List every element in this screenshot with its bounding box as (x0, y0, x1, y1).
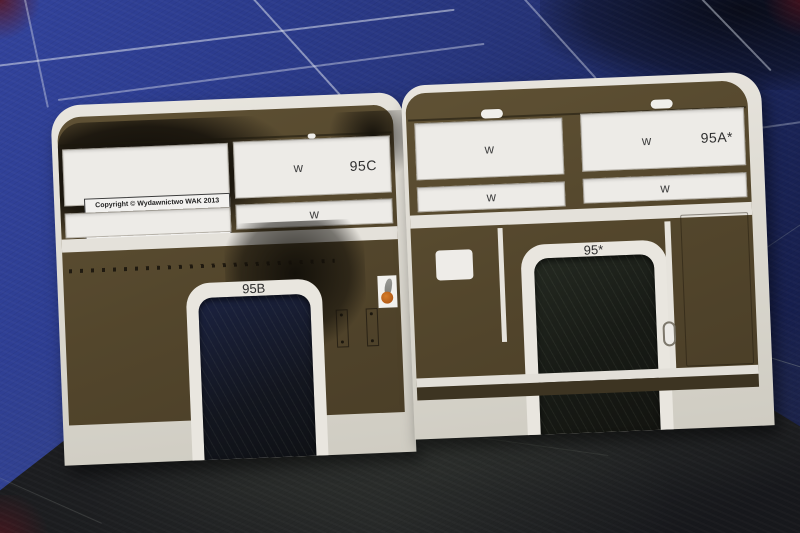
hinge-plate (336, 309, 350, 347)
door-handle (662, 321, 676, 347)
glue-tab (650, 99, 672, 109)
part-number-95A: 95A* (700, 129, 733, 146)
arch-doorway-95B: 95B (185, 278, 328, 460)
window-panel-95C: w 95C (233, 135, 392, 198)
emblem-orange-disc (381, 291, 393, 303)
glass-marker: w (660, 180, 670, 195)
crest-emblem-icon (377, 275, 397, 308)
glass-marker: w (641, 132, 651, 147)
glass-marker: w (486, 189, 496, 204)
arch-doorway-95star: 95* (520, 239, 674, 435)
sheet-left-half: Copyright © Wydawnictwo WAK 2013 All rig… (50, 92, 416, 466)
glass-marker: w (293, 160, 303, 175)
part-number-95C: 95C (349, 156, 377, 173)
window-panel-95A: w 95A* (580, 107, 746, 172)
window-panel-with-copyright: Copyright © Wydawnictwo WAK 2013 All rig… (62, 143, 230, 207)
cutout-hole-showing-mat (198, 294, 316, 460)
glass-marker: w (484, 141, 494, 156)
card-model-parts-sheet: Copyright © Wydawnictwo WAK 2013 All rig… (50, 71, 776, 465)
small-white-plate (435, 249, 473, 280)
glue-tab (481, 109, 503, 119)
sheet-right-half: w w w 95A* w 95* (401, 71, 775, 439)
window-panel: w (414, 117, 564, 180)
cutout-hole-showing-mat (534, 254, 661, 435)
cab-door-outline (680, 212, 754, 367)
photo-paper-model-sheet-on-cutting-mat: Copyright © Wydawnictwo WAK 2013 All rig… (0, 0, 800, 533)
hinge-plate (366, 308, 380, 346)
